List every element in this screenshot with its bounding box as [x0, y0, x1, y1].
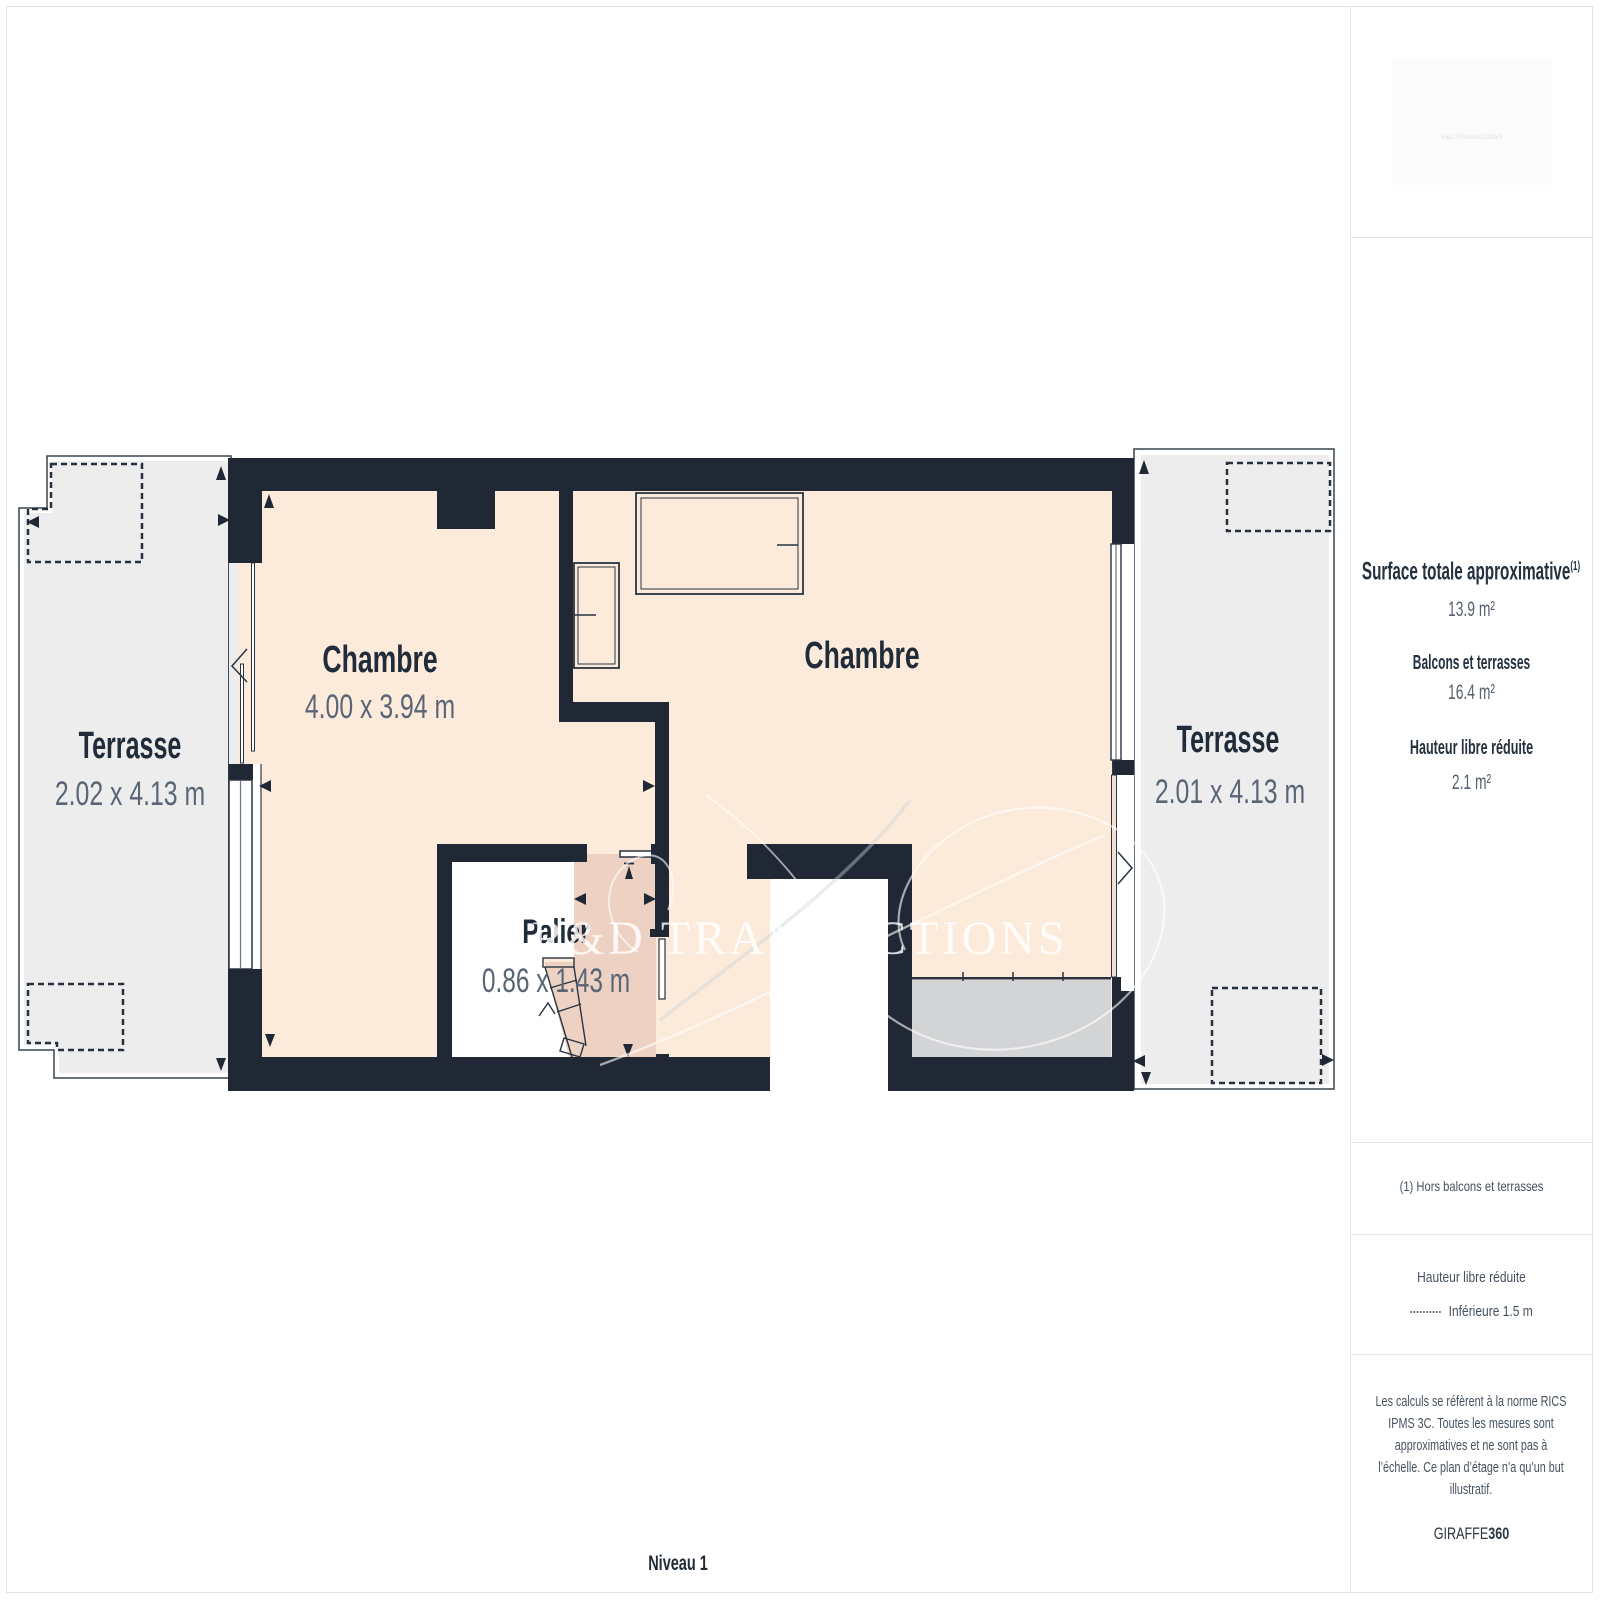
svg-text:2.01 x 4.13 m: 2.01 x 4.13 m: [1155, 773, 1305, 811]
svg-text:Terrasse: Terrasse: [79, 724, 182, 766]
svg-text:R&D TRANSACTIONS: R&D TRANSACTIONS: [532, 912, 1069, 965]
svg-text:4.00 x 3.94 m: 4.00 x 3.94 m: [305, 688, 455, 726]
svg-text:Terrasse: Terrasse: [1177, 718, 1280, 760]
svg-text:Chambre: Chambre: [322, 637, 437, 680]
svg-text:0.86 x 1.43 m: 0.86 x 1.43 m: [482, 962, 630, 1000]
svg-text:2.02 x 4.13 m: 2.02 x 4.13 m: [55, 775, 205, 813]
svg-text:Chambre: Chambre: [804, 633, 919, 676]
svg-text:Niveau 1: Niveau 1: [648, 1551, 708, 1574]
